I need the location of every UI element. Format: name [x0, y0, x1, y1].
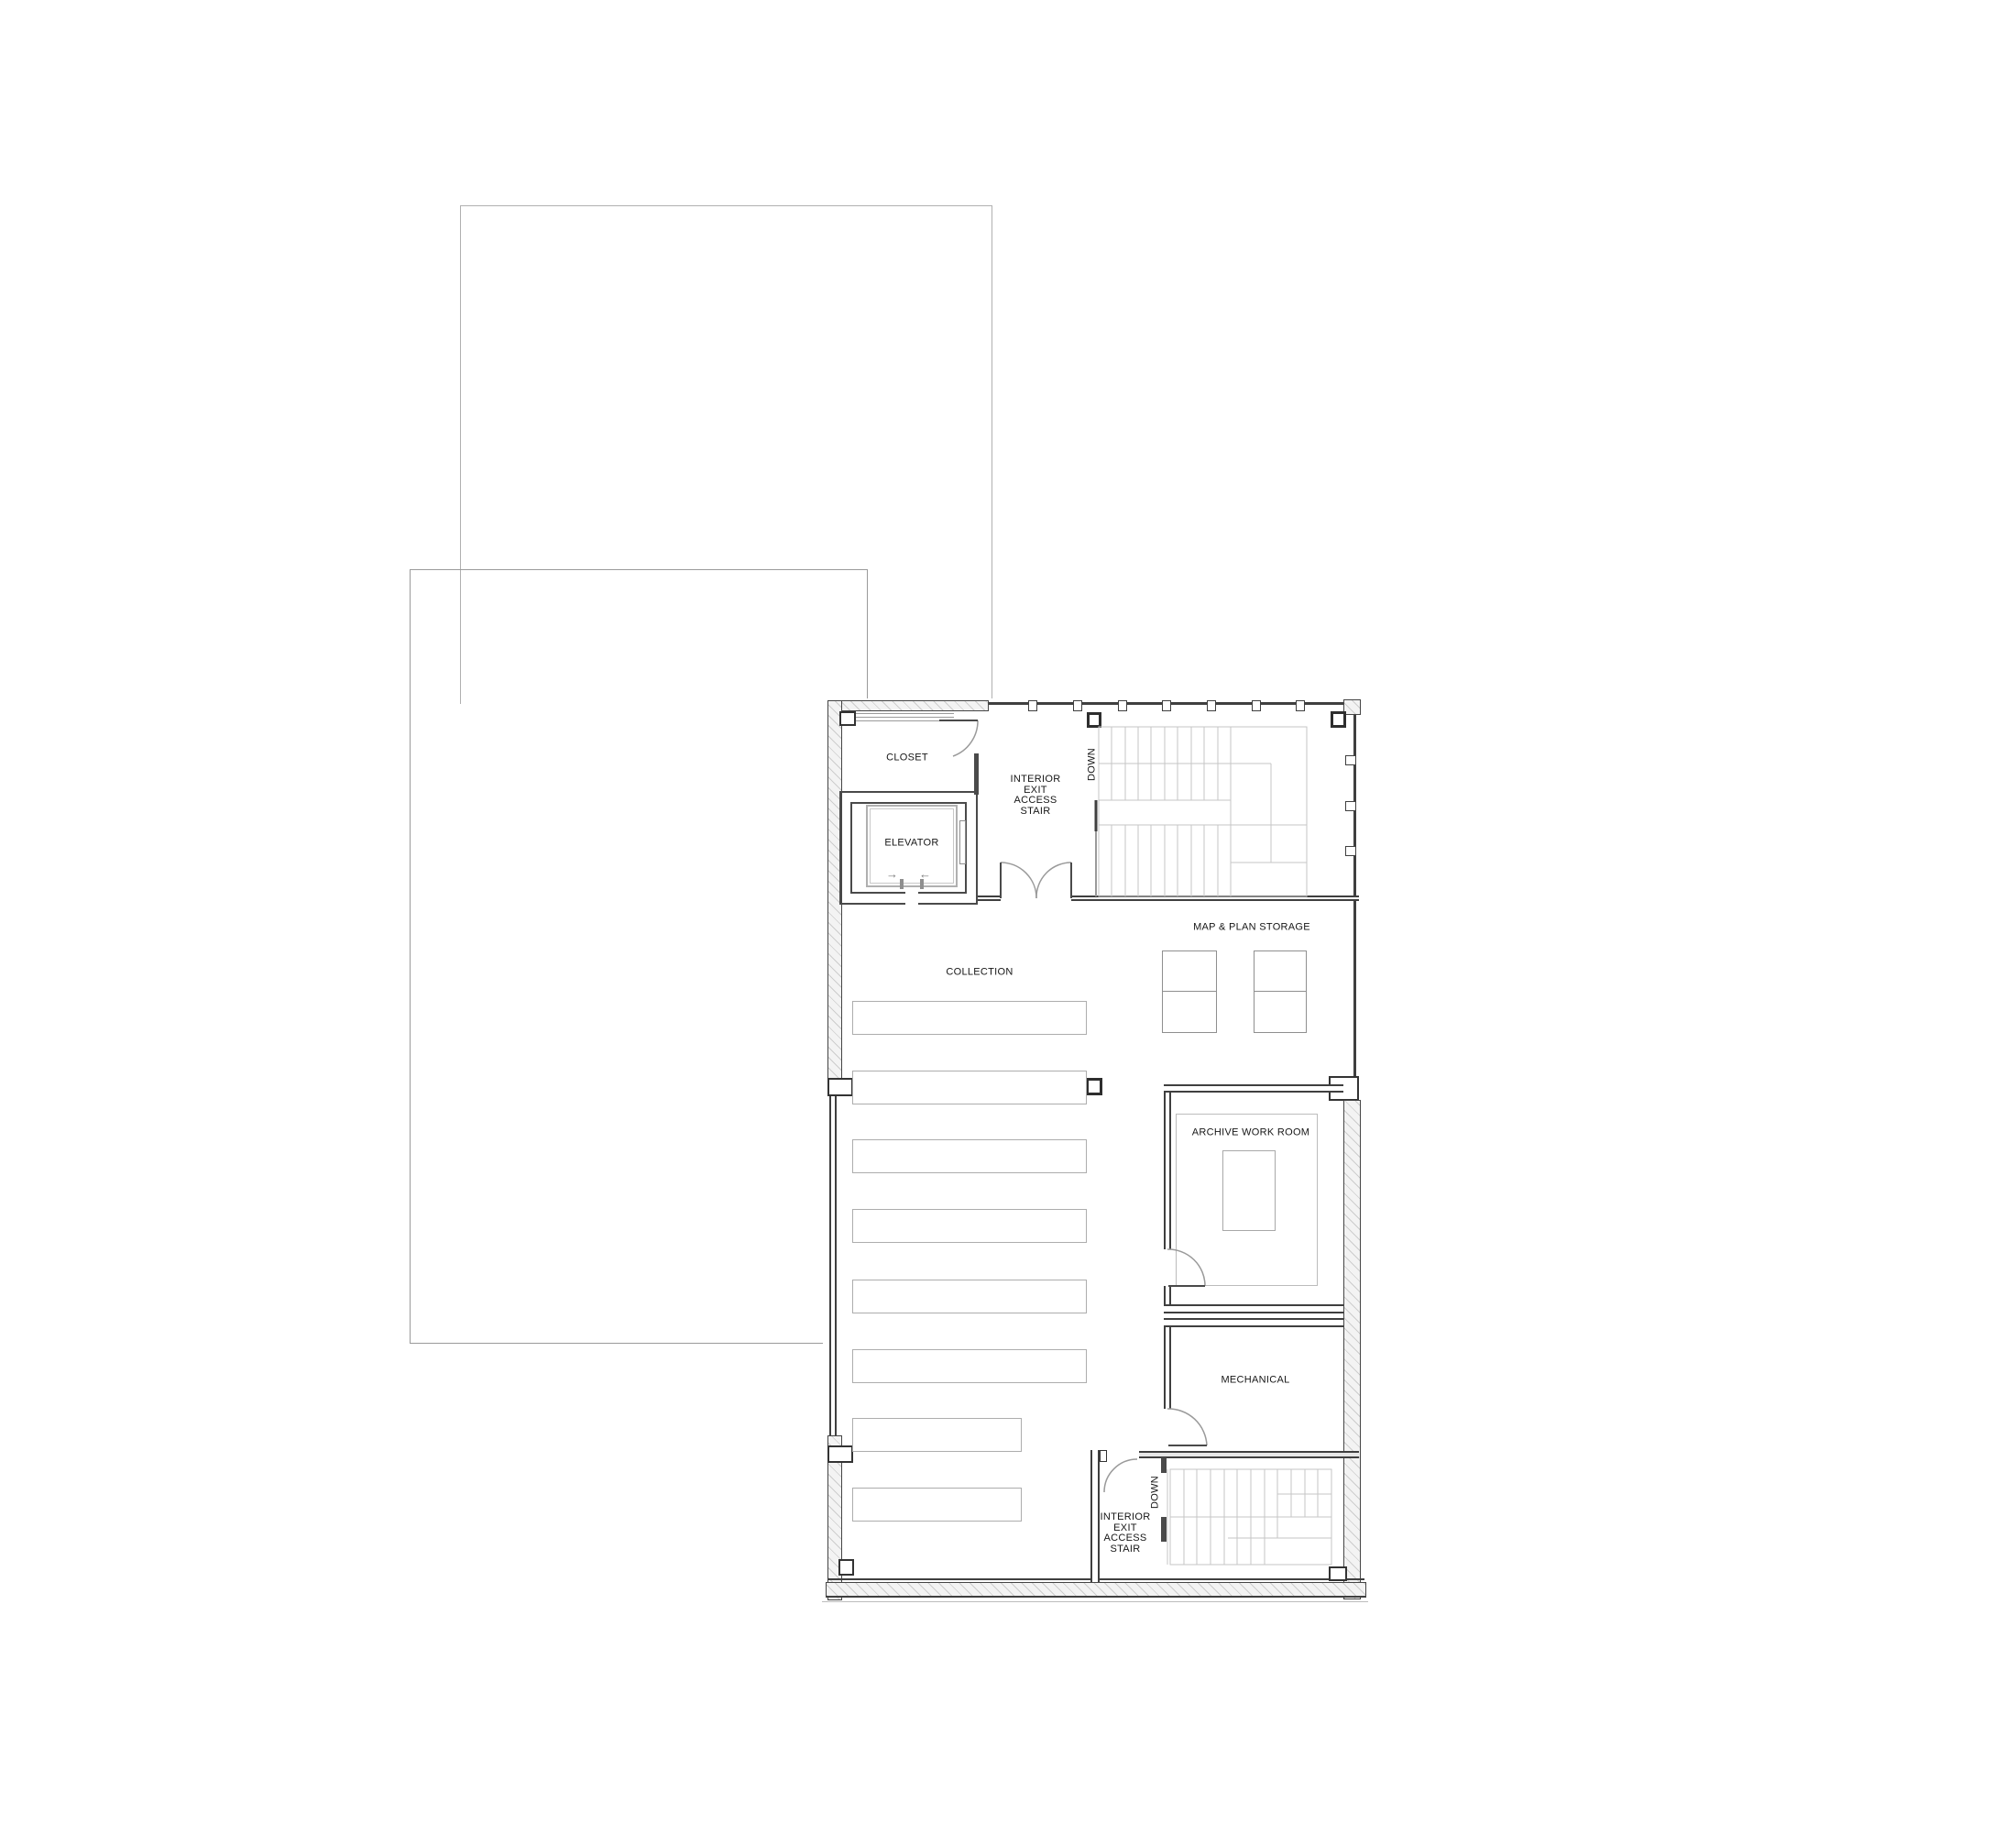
- floor-plan: → ←: [0, 0, 2016, 1835]
- room-label-stair-top: INTERIOR EXIT ACCESS STAIR: [1011, 775, 1061, 817]
- double-door-left-arc: [1001, 863, 1036, 898]
- stair-bottom-treads: [1167, 1469, 1331, 1565]
- room-label-archive-work-room: ARCHIVE WORK ROOM: [1192, 1127, 1310, 1138]
- room-label-mechanical: MECHANICAL: [1221, 1375, 1289, 1386]
- label-line: STAIR: [1011, 807, 1061, 818]
- down-label-bottom: DOWN: [1150, 1476, 1161, 1509]
- double-door-right-arc: [1036, 863, 1071, 898]
- label-line: INTERIOR: [1011, 775, 1061, 786]
- linework-layer: [0, 0, 2016, 1835]
- label-line: ACCESS: [1101, 1533, 1151, 1544]
- label-line: INTERIOR: [1101, 1512, 1151, 1523]
- door-swings: [953, 720, 1207, 1492]
- room-label-collection: COLLECTION: [946, 967, 1013, 978]
- down-label-top: DOWN: [1087, 748, 1098, 781]
- stair-bottom-door-arc: [1104, 1459, 1137, 1492]
- closet-door-arc: [953, 720, 978, 756]
- room-label-stair-bottom: INTERIOR EXIT ACCESS STAIR: [1101, 1512, 1151, 1555]
- label-line: ACCESS: [1011, 796, 1061, 807]
- room-label-elevator: ELEVATOR: [884, 838, 938, 849]
- mechanical-door-arc: [1167, 1409, 1207, 1445]
- label-line: STAIR: [1101, 1544, 1151, 1555]
- room-label-map-plan-storage: MAP & PLAN STORAGE: [1193, 922, 1310, 933]
- door-leaves: [939, 720, 1207, 1445]
- archive-door-arc: [1167, 1249, 1205, 1286]
- stair-top-treads: [1099, 727, 1307, 896]
- room-label-closet: CLOSET: [886, 753, 928, 764]
